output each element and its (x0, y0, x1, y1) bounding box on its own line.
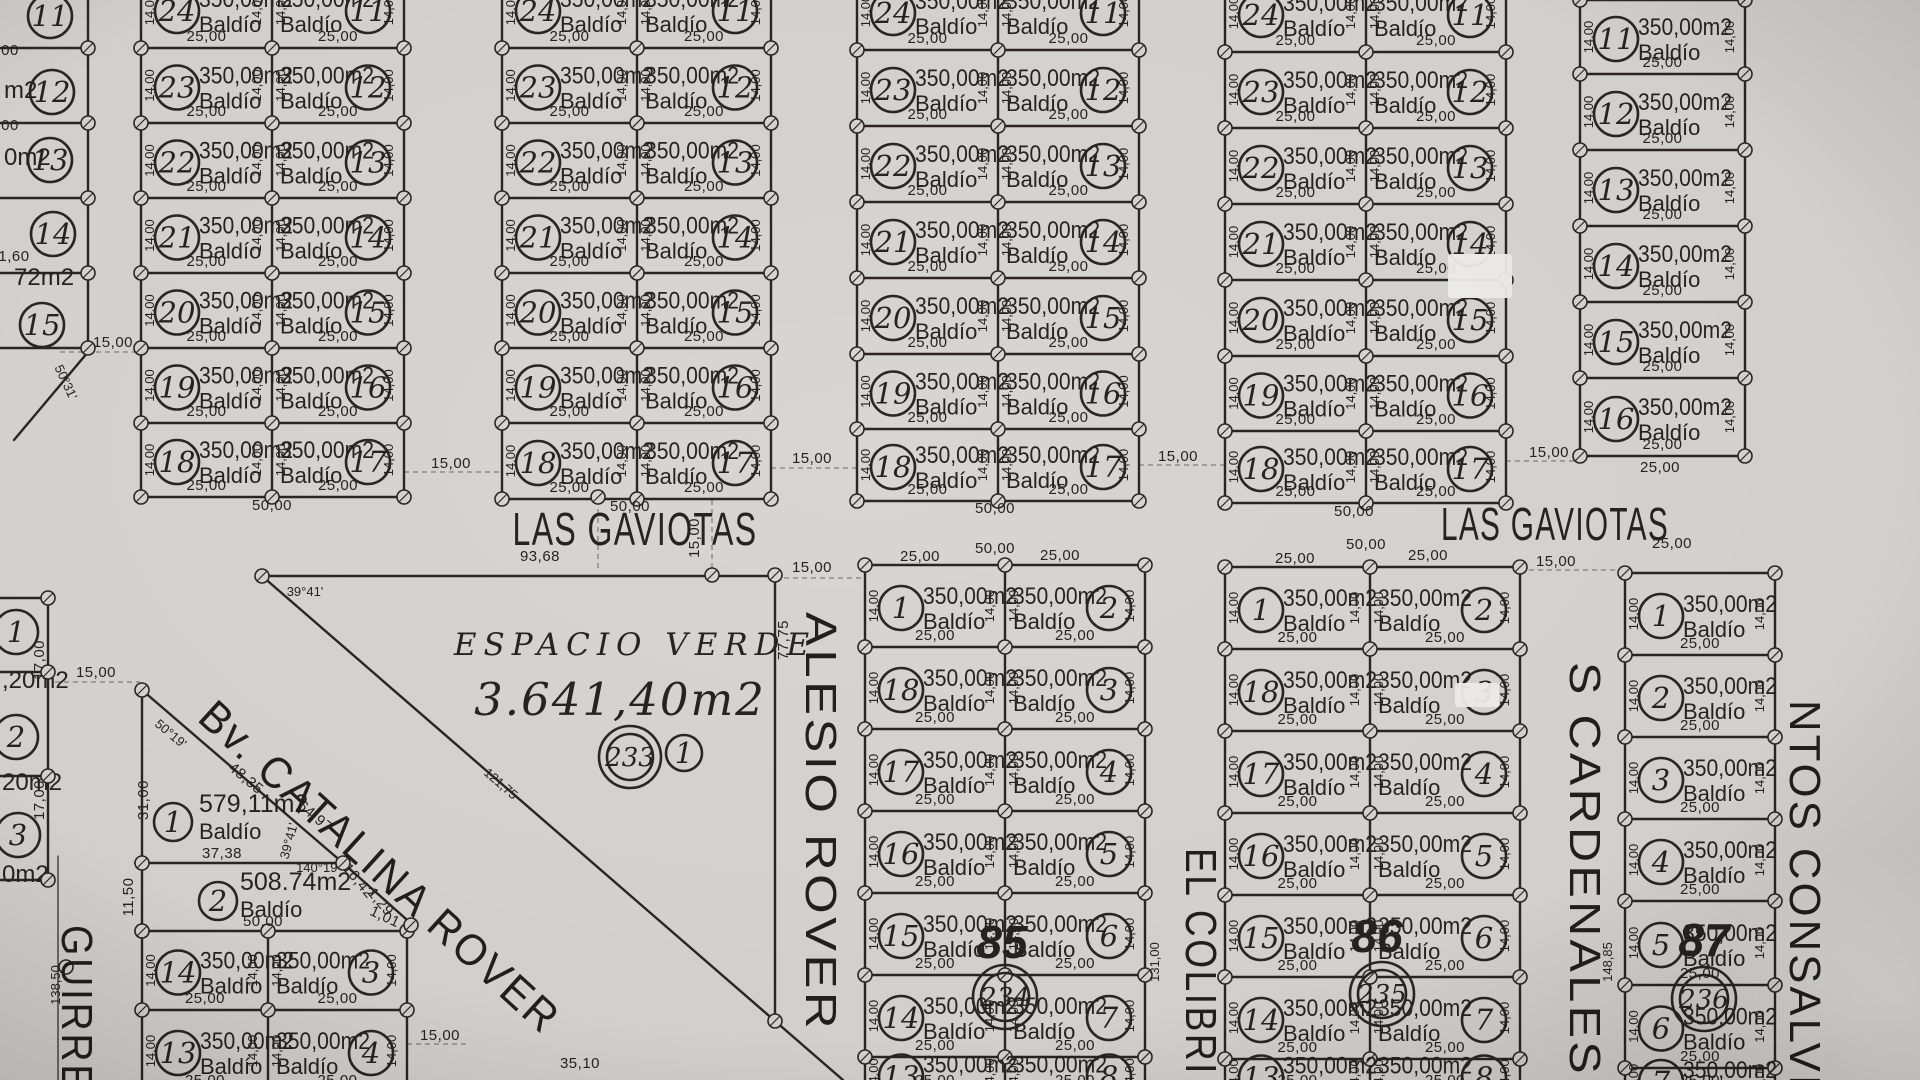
parcel-area: 350,00m2 (915, 293, 1009, 320)
dimension-label: 50,00 (1346, 536, 1386, 553)
parcel-depth-dim: 14,00 (1367, 74, 1382, 107)
number-text: 17 (883, 755, 920, 789)
marker-circle (1573, 0, 1587, 7)
parcel-depth-dim: 14,00 (1116, 449, 1131, 482)
parcel-width-dim: 25,00 (318, 403, 358, 420)
number-text: 21 (158, 221, 196, 255)
parcel-depth-dim: 14,00 (273, 69, 288, 102)
parcel-depth-dim: 14,00 (1122, 754, 1137, 787)
parcel-width-dim: 25,00 (549, 28, 589, 45)
parcel-depth-dim: 14,00 (975, 72, 990, 105)
parcel-depth-dim: 14,00 (503, 144, 518, 177)
parcel-width-dim: 25,00 (907, 409, 947, 426)
parcel-width-dim: 25,00 (1275, 32, 1315, 49)
edge-parcel-area-fragment: 72m2 (14, 264, 74, 291)
parcel-depth-dim: 14,00 (982, 836, 997, 869)
parcel-depth-dim: 14,00 (982, 672, 997, 705)
boundary-marker (265, 116, 279, 130)
number-text: 3 (1652, 763, 1670, 797)
number-text: 6 (1652, 1012, 1670, 1046)
parcel-depth-dim: 14,00 (269, 954, 284, 987)
boundary-marker (1618, 566, 1632, 580)
boundary-marker (991, 422, 1005, 436)
parcel-depth-dim: 14,00 (1581, 172, 1596, 205)
parcel-depth-dim: 14,00 (748, 0, 763, 25)
boundary-marker (1138, 804, 1152, 818)
parcel-area: 350,00m2 (915, 0, 1009, 15)
number-text: 15 (883, 919, 920, 953)
parcel-width-dim: 25,00 (684, 253, 724, 270)
street-label-guirre: GUIRRE (52, 925, 101, 1080)
parcel-depth-dim: 14,00 (638, 69, 653, 102)
boundary-marker (1738, 449, 1752, 463)
parcel-depth-dim: 14,00 (1626, 598, 1641, 631)
number-text: 1 (164, 805, 182, 839)
number-text: 16 (1243, 839, 1280, 873)
boundary-marker (1218, 496, 1232, 510)
boundary-marker (991, 195, 1005, 209)
parcel-depth-dim: 14,00 (1483, 377, 1498, 410)
number-text: 1 (1252, 593, 1270, 627)
number-text: 7 (1652, 1065, 1671, 1080)
parcel-width-dim: 25,00 (318, 477, 358, 494)
parcel-depth-dim: 14,00 (1122, 836, 1137, 869)
parcel-depth-dim: 14,00 (1347, 756, 1362, 789)
boundary-marker (1363, 888, 1377, 902)
parcel-depth-dim: 14,00 (1116, 375, 1131, 408)
parcel-width-dim: 25,00 (1055, 709, 1095, 726)
espacio-verde-manzana-number: 233 (604, 743, 655, 773)
espacio-verde-area: 3.641,40m2 (474, 673, 766, 726)
parcel-depth-dim: 14,00 (1226, 150, 1241, 183)
manzana-big-number: 85 (976, 916, 1029, 968)
parcel-width-dim: 25,00 (684, 479, 724, 496)
parcel-depth-dim: 14,00 (1226, 226, 1241, 259)
parcel-depth-dim: 14,00 (858, 224, 873, 257)
parcel-width-dim: 25,00 (1425, 1072, 1465, 1080)
parcel-depth-dim: 14,00 (273, 219, 288, 252)
boundary-marker (1218, 197, 1232, 211)
parcel-area: 350,00m2 (1283, 444, 1377, 471)
boundary-marker (630, 116, 644, 130)
boundary-marker (265, 266, 279, 280)
number-text: 4 (1651, 845, 1670, 879)
parcel-width-dim: 25,00 (684, 178, 724, 195)
parcel-depth-dim: 14,00 (1752, 927, 1767, 960)
parcel-depth-dim: 14,00 (1722, 172, 1737, 205)
parcel-width-dim: 25,00 (1416, 108, 1456, 125)
boundary-marker (1132, 422, 1146, 436)
boundary-marker (134, 490, 148, 504)
boundary-marker (1359, 424, 1373, 438)
parcel-area: 350,00m2 (1283, 143, 1377, 170)
parcel-width-dim: 25,00 (1680, 881, 1720, 898)
parcel-depth-dim: 14,00 (1497, 592, 1512, 625)
boundary-marker (1363, 724, 1377, 738)
parcel-depth-dim: 14,00 (1722, 401, 1737, 434)
parcel-depth-dim: 14,00 (1116, 300, 1131, 333)
parcel-width-dim: 25,00 (1425, 957, 1465, 974)
parcel-number: 13 (1594, 168, 1638, 212)
parcel-depth-dim: 14,00 (638, 369, 653, 402)
parcel-width-dim: 25,00 (1275, 108, 1315, 125)
number-text: 19 (875, 377, 912, 411)
boundary-marker (858, 640, 872, 654)
boundary-marker (1513, 642, 1527, 656)
parcel-depth-dim: 14,00 (1371, 592, 1386, 625)
number-text: 24 (158, 0, 196, 28)
boundary-marker (850, 422, 864, 436)
parcel-depth-dim: 14,00 (1226, 0, 1241, 29)
parcel-depth-dim: 14,00 (858, 0, 873, 27)
boundary-marker (1513, 806, 1527, 820)
parcel-depth-dim: 14,00 (1367, 0, 1382, 29)
parcel-depth-dim: 14,00 (1006, 754, 1021, 787)
parcel-depth-dim: 14,00 (245, 954, 260, 987)
parcel-width-dim: 25,00 (1275, 336, 1315, 353)
parcel-width-dim: 25,00 (1048, 258, 1088, 275)
number-text: 16 (1598, 402, 1635, 436)
parcel-depth-dim: 14,00 (1343, 226, 1358, 259)
edge-parcel-number: 14 (31, 212, 75, 256)
street-label-consalvi: NTOS CONSALVI (1780, 700, 1829, 1080)
boundary-marker (1513, 970, 1527, 984)
boundary-marker (134, 116, 148, 130)
parcel-width-dim: 25,00 (186, 103, 226, 120)
parcel-depth-dim: 14,00 (975, 0, 990, 27)
boundary-marker (1138, 886, 1152, 900)
parcel-depth-dim: 14,00 (999, 449, 1014, 482)
parcel-status: Baldío (199, 819, 261, 844)
parcel-depth-dim: 14,00 (269, 1035, 284, 1068)
parcel-depth-dim: 14,00 (638, 0, 653, 25)
parcel-width-dim: 25,00 (1055, 791, 1095, 808)
number-text: 22 (1242, 151, 1280, 185)
parcel-width-dim: 25,00 (186, 403, 226, 420)
boundary-marker (495, 116, 509, 130)
dimension-label: 37,38 (202, 845, 242, 862)
parcel-depth-dim: 14,00 (1722, 324, 1737, 357)
dimension-label: 31,00 (135, 780, 152, 820)
boundary-marker (1132, 43, 1146, 57)
dimension-label: 131,00 (1147, 942, 1162, 982)
parcel-width-dim: 25,00 (186, 477, 226, 494)
parcel-width-dim: 25,00 (1055, 873, 1095, 890)
number-text: 2 (6, 720, 25, 754)
street-label-alesio-rover: ALESIO ROVER (796, 612, 845, 1032)
parcel-area: 350,00m2 (923, 583, 1017, 610)
parcel-depth-dim: 14,00 (142, 144, 157, 177)
parcel-width-dim: 25,00 (317, 1072, 357, 1080)
boundary-marker (1573, 67, 1587, 81)
parcel-depth-dim: 14,00 (249, 444, 264, 477)
parcel-width-dim: 25,00 (1680, 1072, 1720, 1080)
boundary-marker (1359, 197, 1373, 211)
parcel-area: 350,00m2 (1006, 217, 1100, 244)
parcel-depth-dim: 14,00 (999, 375, 1014, 408)
parcel-depth-dim: 14,00 (381, 294, 396, 327)
parcel-number: 16 (879, 832, 923, 876)
parcel-width-dim: 25,00 (1277, 629, 1317, 646)
boundary-marker (858, 968, 872, 982)
boundary-marker (1513, 888, 1527, 902)
number-text: 1 (1652, 599, 1670, 633)
parcel-depth-dim: 14,00 (1497, 920, 1512, 953)
parcel-area: 350,00m2 (1006, 293, 1100, 320)
parcel-depth-dim: 14,00 (381, 69, 396, 102)
boundary-marker (1738, 67, 1752, 81)
parcel-depth-dim: 14,00 (1116, 72, 1131, 105)
boundary-marker (991, 119, 1005, 133)
parcel-area: 350,00m2 (1374, 444, 1468, 471)
boundary-marker (1218, 273, 1232, 287)
street-label-el-colibri: EL COLIBRI (1176, 848, 1225, 1076)
parcel-number: 16 (1594, 397, 1638, 441)
boundary-marker (135, 683, 149, 697)
boundary-marker (630, 191, 644, 205)
parcel-width-dim: 25,00 (318, 253, 358, 270)
parcel-width-dim: 25,00 (1275, 411, 1315, 428)
boundary-marker (858, 558, 872, 572)
number-text: 21 (519, 221, 557, 255)
parcel-area: 350,00m2 (1006, 65, 1100, 92)
parcel-width-dim: 25,00 (549, 178, 589, 195)
parcel-depth-dim: 14,00 (614, 0, 629, 25)
number-text: 11 (1598, 22, 1635, 56)
parcel-depth-dim: 14,00 (748, 219, 763, 252)
parcel-depth-dim: 14,00 (1367, 451, 1382, 484)
parcel-width-dim: 25,00 (318, 328, 358, 345)
dimension-label: 15,00 (93, 334, 133, 351)
parcel-width-dim: 25,00 (185, 1072, 225, 1080)
parcel-depth-dim: 14,00 (142, 294, 157, 327)
boundary-marker (397, 41, 411, 55)
parcel-width-dim: 25,00 (318, 178, 358, 195)
dimension-label: 1,60 (0, 248, 30, 265)
parcel-width-dim: 25,00 (684, 403, 724, 420)
parcel-width-dim: 25,00 (186, 28, 226, 45)
parcel-depth-dim: 14,00 (1367, 150, 1382, 183)
parcel-area: 350,00m2 (645, 213, 739, 240)
dimension-label: 15,00 (1158, 448, 1198, 465)
parcel-depth-dim: 14,00 (614, 445, 629, 478)
parcel-width-dim: 25,00 (1048, 409, 1088, 426)
boundary-marker (1738, 143, 1752, 157)
number-text: 13 (160, 1036, 197, 1070)
dimension-label: 50,00 (1334, 503, 1374, 520)
boundary-marker (630, 266, 644, 280)
parcel-width-dim: 25,00 (1642, 358, 1682, 375)
boundary-marker (265, 41, 279, 55)
parcel-area: 350,00m2 (276, 1028, 370, 1055)
parcel-depth-dim: 14,00 (1006, 590, 1021, 623)
parcel-depth-dim: 14,00 (273, 144, 288, 177)
boundary-marker (998, 640, 1012, 654)
boundary-marker (495, 191, 509, 205)
parcel-depth-dim: 14,00 (381, 444, 396, 477)
parcel-depth-dim: 14,00 (1483, 451, 1498, 484)
dimension-label: 39°41' (287, 584, 324, 599)
parcel-width-dim: 25,00 (684, 328, 724, 345)
boundary-marker (850, 119, 864, 133)
parcel-width-dim: 25,00 (907, 481, 947, 498)
number-text: 14 (160, 956, 197, 990)
parcel-depth-dim: 14,00 (866, 672, 881, 705)
parcel-depth-dim: 14,00 (1347, 674, 1362, 707)
parcel-width-dim: 25,00 (186, 178, 226, 195)
parcel-width-dim: 25,00 (1048, 182, 1088, 199)
boundary-marker (397, 191, 411, 205)
number-text: 14 (35, 217, 72, 251)
parcel-depth-dim: 14,00 (143, 954, 158, 987)
parcel-width-dim: 25,00 (1048, 481, 1088, 498)
parcel-area: 350,00m2 (645, 288, 739, 315)
boundary-marker (81, 41, 95, 55)
parcel-depth-dim: 14,00 (866, 590, 881, 623)
parcel-depth-dim: 14,00 (384, 1035, 399, 1068)
parcel-area: 350,00m2 (915, 217, 1009, 244)
parcel-area: 350,00m2 (276, 948, 370, 975)
dimension-label: 00 (1, 42, 19, 59)
parcel-depth-dim: 14,00 (1371, 838, 1386, 871)
parcel-area: 350,00m2 (1006, 0, 1100, 15)
parcel-number: 14 (879, 996, 923, 1040)
boundary-marker (764, 116, 778, 130)
parcel-width-dim: 25,00 (1055, 627, 1095, 644)
correction-tape-patch (1455, 683, 1499, 707)
parcel-depth-dim: 14,00 (614, 219, 629, 252)
boundary-marker (1499, 45, 1513, 59)
boundary-marker (1138, 558, 1152, 572)
parcel-depth-dim: 14,00 (249, 144, 264, 177)
parcel-depth-dim: 14,00 (1497, 1059, 1512, 1080)
parcel-width-dim: 25,00 (1642, 54, 1682, 71)
parcel-depth-dim: 14,00 (1006, 672, 1021, 705)
parcel-area: 350,00m2 (1638, 14, 1732, 41)
boundary-marker (1359, 349, 1373, 363)
number-text: 19 (520, 371, 557, 405)
dimension-label: 50,00 (975, 540, 1015, 557)
parcel-depth-dim: 14,00 (273, 294, 288, 327)
parcel-depth-dim: 14,00 (1752, 762, 1767, 795)
parcel-width-dim: 25,00 (549, 103, 589, 120)
parcel-depth-dim: 14,00 (866, 1058, 881, 1080)
dimension-label: 140°19' (296, 860, 340, 875)
boundary-marker (41, 591, 55, 605)
parcel-number: 17 (879, 750, 923, 794)
boundary-marker (1218, 121, 1232, 135)
parcel-width-dim: 25,00 (1275, 260, 1315, 277)
number-text: 1 (892, 591, 910, 625)
boundary-marker (1573, 143, 1587, 157)
number-text: 2 (1474, 593, 1493, 627)
parcel-depth-dim: 14,00 (381, 369, 396, 402)
parcel-depth-dim: 14,00 (982, 754, 997, 787)
parcel-width-dim: 25,00 (1416, 32, 1456, 49)
parcel-depth-dim: 14,00 (384, 954, 399, 987)
boundary-marker (1738, 371, 1752, 385)
boundary-marker (1132, 119, 1146, 133)
parcel-depth-dim: 14,00 (982, 590, 997, 623)
parcel-depth-dim: 14,00 (273, 0, 288, 25)
parcel-width-dim: 25,00 (185, 990, 225, 1007)
parcel-depth-dim: 14,00 (503, 369, 518, 402)
number-text: 3 (9, 818, 27, 852)
boundary-marker (1738, 219, 1752, 233)
parcel-width-dim: 25,00 (318, 103, 358, 120)
number-text: 22 (519, 146, 557, 180)
street-label-las-gaviotas-east: LAS GAVIOTAS (1441, 498, 1669, 550)
boundary-marker (81, 116, 95, 130)
parcel-depth-dim: 14,00 (1497, 756, 1512, 789)
parcel-depth-dim: 14,00 (1722, 21, 1737, 54)
parcel-depth-dim: 14,00 (1343, 377, 1358, 410)
boundary-marker (630, 41, 644, 55)
boundary-marker (764, 41, 778, 55)
parcel-depth-dim: 14,00 (1347, 1059, 1362, 1080)
parcel-depth-dim: 14,00 (503, 294, 518, 327)
parcel-depth-dim: 14,00 (142, 0, 157, 25)
parcel-area: 350,00m2 (1638, 317, 1732, 344)
parcel-width-dim: 25,00 (1642, 436, 1682, 453)
number-text: 24 (519, 0, 557, 28)
espacio-verde-parcel-number: 1 (675, 736, 693, 770)
boundary-marker (1218, 45, 1232, 59)
parcel-area: 350,00m2 (1283, 295, 1377, 322)
dimension-label: 15,00 (420, 1027, 460, 1044)
edge-parcel-area-fragment: ,20m2 (2, 667, 69, 694)
parcel-width-dim: 25,00 (318, 28, 358, 45)
boundary-marker (1363, 560, 1377, 574)
parcel-depth-dim: 14,00 (1226, 838, 1241, 871)
boundary-marker (630, 416, 644, 430)
parcel-depth-dim: 14,00 (1483, 0, 1498, 29)
parcel-area: 350,00m2 (1374, 143, 1468, 170)
dimension-label: 50,00 (252, 497, 292, 514)
parcel-depth-dim: 14,00 (1581, 324, 1596, 357)
parcel-depth-dim: 14,00 (975, 449, 990, 482)
parcel-depth-dim: 14,00 (1483, 226, 1498, 259)
parcel-width-dim: 25,00 (915, 709, 955, 726)
parcel-depth-dim: 14,00 (999, 72, 1014, 105)
parcel-width-dim: 25,00 (1275, 483, 1315, 500)
boundary-marker (261, 1003, 275, 1017)
number-text: 1 (7, 615, 25, 649)
parcel-number: 13 (156, 1031, 200, 1075)
boundary-marker (495, 492, 509, 506)
boundary-marker (1218, 349, 1232, 363)
number-text: 21 (1242, 227, 1280, 261)
number-text: 5 (1475, 839, 1493, 873)
parcel-area: 350,00m2 (1283, 667, 1377, 694)
number-text: 18 (883, 673, 920, 707)
parcel-depth-dim: 14,00 (1722, 248, 1737, 281)
parcel-number: 17 (1239, 752, 1283, 796)
edge-parcel-area-fragment: 0m2 (4, 144, 51, 171)
parcel-area: 350,00m2 (1374, 219, 1468, 246)
dimension-label: 25,00 (900, 548, 940, 565)
number-text: 24 (874, 0, 912, 30)
parcel-cell: 4350,00m2Baldío25,0014,0014,00 (269, 1028, 399, 1080)
parcel-width-dim: 25,00 (1055, 955, 1095, 972)
boundary-marker (1218, 642, 1232, 656)
parcel-area: 350,00m2 (1378, 831, 1472, 858)
boundary-marker (397, 266, 411, 280)
boundary-marker (991, 347, 1005, 361)
plan-canvas: 24350,00m2Baldío25,0014,0014,0011350,00m… (0, 0, 1920, 1080)
number-text: 23 (874, 73, 912, 107)
parcel-depth-dim: 14,00 (866, 754, 881, 787)
